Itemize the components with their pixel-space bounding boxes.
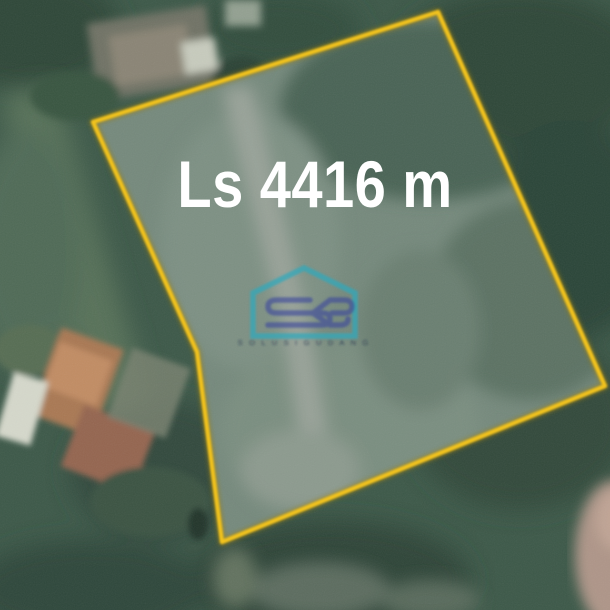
satellite-map-canvas: SG S O L U S I G U D A N G Ls 4416 m — [0, 0, 610, 610]
photo-grain — [0, 0, 610, 610]
area-label: Ls 4416 m — [177, 148, 452, 221]
satellite-image: SG S O L U S I G U D A N G Ls 4416 m — [0, 0, 610, 610]
watermark-wordmark: S O L U S I G U D A N G — [238, 338, 371, 347]
